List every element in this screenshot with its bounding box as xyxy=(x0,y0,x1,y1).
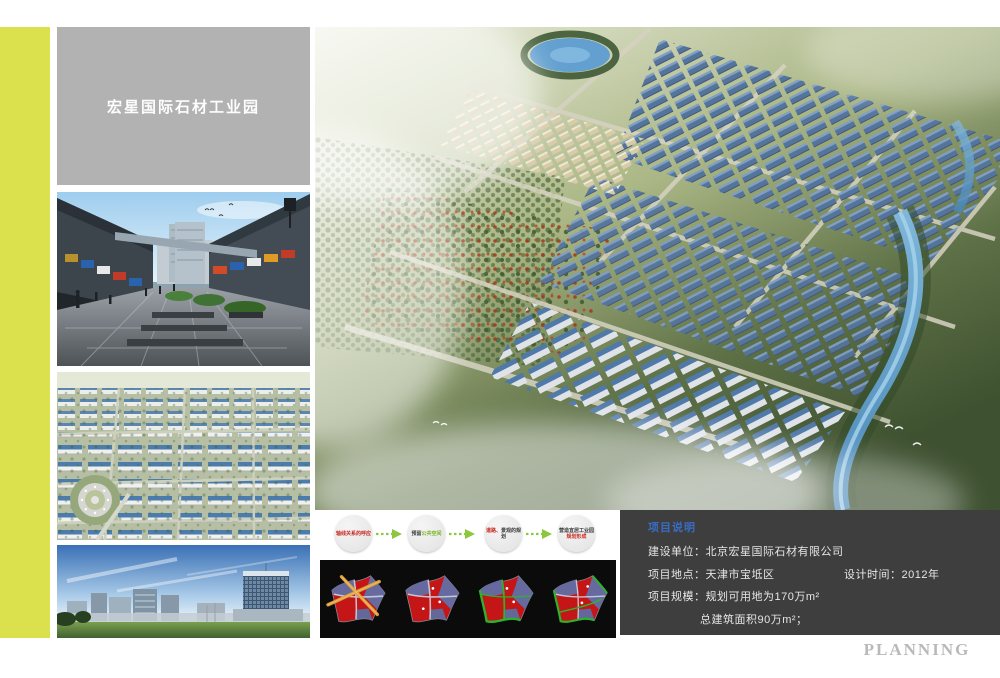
concept-diagram-greenways xyxy=(471,570,539,628)
concept-diagrams-panel xyxy=(320,560,616,638)
project-info-title: 项目说明 xyxy=(648,519,696,535)
info-label: 建设单位： xyxy=(648,546,706,558)
design-process-flow: 轴线关系的呼应 预留公共空间 道路、景观的规划 营造宜居工业园 规划形成 xyxy=(318,514,618,558)
concept-diagram-nodes xyxy=(397,570,465,628)
flow-step-2-prefix: 预留 xyxy=(411,531,421,537)
flow-step-3: 道路、景观的规划 xyxy=(485,515,522,552)
info-row-builder: 建设单位：北京宏星国际石材有限公司 xyxy=(648,541,992,564)
flow-arrow-icon xyxy=(526,529,552,539)
planning-watermark: PLANNING xyxy=(862,640,972,660)
project-info-box: 项目说明 建设单位：北京宏星国际石材有限公司 项目地点：天津市宝坻区 设计时间：… xyxy=(620,510,1000,635)
info-value: 总建筑面积90万m²； xyxy=(700,614,808,626)
info-label: 项目规模： xyxy=(648,591,706,603)
street-view-photo xyxy=(57,192,310,366)
center-tower xyxy=(175,222,205,284)
info-row-scale: 项目规模：规划可用地为170万m² xyxy=(648,586,992,609)
info-value: 规划可用地为170万m² xyxy=(706,591,820,603)
aerial-park-illustration xyxy=(57,372,310,540)
horizon-haze xyxy=(57,372,310,388)
project-info-rows: 建设单位：北京宏星国际石材有限公司 项目地点：天津市宝坻区 设计时间：2012年… xyxy=(648,541,992,631)
master-plan-render xyxy=(315,27,1000,510)
flow-step-3-label: 景观的规划 xyxy=(501,528,521,540)
flow-step-4-line2: 规划形成 xyxy=(566,534,586,540)
master-plan-illustration xyxy=(315,27,1000,510)
aerial-park-photo xyxy=(57,372,310,540)
info-design-time: 设计时间：2012年 xyxy=(844,564,939,587)
accent-strip xyxy=(0,27,50,638)
info-value: 北京宏星国际石材有限公司 xyxy=(706,546,844,558)
info-label: 项目地点： xyxy=(648,569,706,581)
info-value: 2012年 xyxy=(902,569,940,581)
flow-arrow-icon xyxy=(449,529,475,539)
concept-diagram-axes xyxy=(323,570,391,628)
flow-step-2: 预留公共空间 xyxy=(408,515,445,552)
project-title-box: 宏星国际石材工业园 xyxy=(57,27,310,185)
building-illustration xyxy=(57,545,310,638)
project-title: 宏星国际石材工业园 xyxy=(107,96,260,117)
flow-step-3-prefix: 道路、 xyxy=(486,528,501,534)
info-row-floor-area: 总建筑面积90万m²； xyxy=(648,609,992,632)
building-photo xyxy=(57,545,310,638)
info-row-location: 项目地点：天津市宝坻区 设计时间：2012年 xyxy=(648,564,992,587)
flow-step-2-label: 公共空间 xyxy=(422,531,442,537)
flow-step-1: 轴线关系的呼应 xyxy=(335,515,372,552)
concept-diagram-final xyxy=(545,570,613,628)
lake xyxy=(524,34,616,76)
info-label: 设计时间： xyxy=(844,569,902,581)
street-view-illustration xyxy=(57,192,310,366)
flow-step-1-label: 轴线关系的呼应 xyxy=(336,531,371,537)
flow-arrow-icon xyxy=(376,529,402,539)
flow-step-4: 营造宜居工业园 规划形成 xyxy=(558,515,595,552)
lawn xyxy=(57,622,310,638)
info-value: 天津市宝坻区 xyxy=(706,569,775,581)
presentation-board: 宏星国际石材工业园 xyxy=(0,0,1000,678)
